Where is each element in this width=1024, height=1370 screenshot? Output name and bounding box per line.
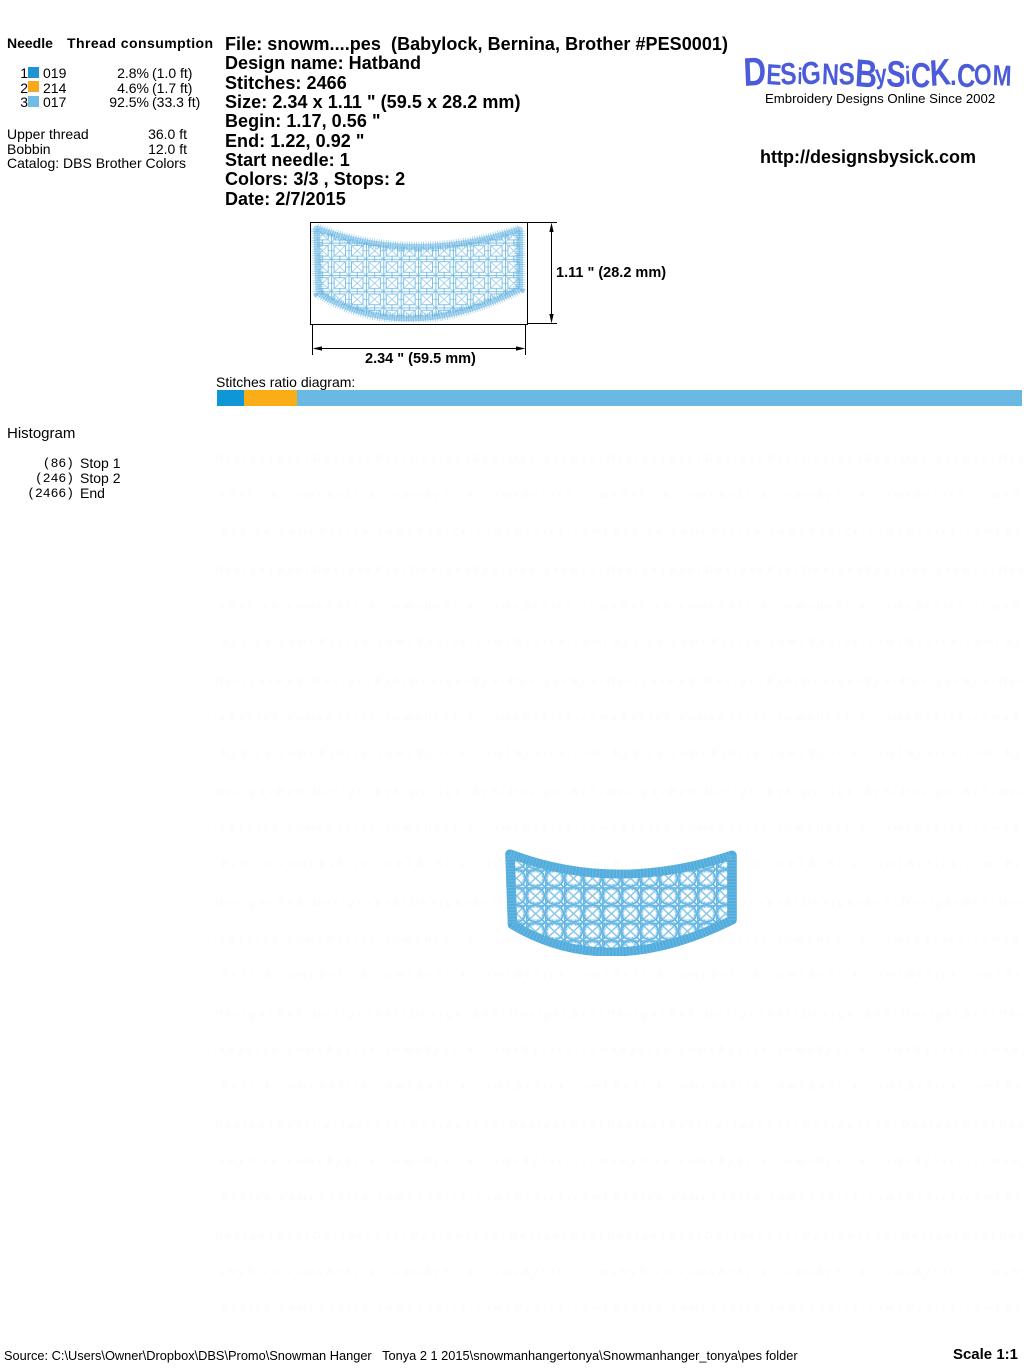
svg-text:N: N [821,57,839,91]
svg-text:O: O [973,57,992,92]
svg-text:S: S [885,54,906,95]
svg-text:K: K [929,52,952,95]
svg-text:G: G [800,55,822,93]
svg-text:M: M [992,58,1012,92]
svg-text:S: S [838,56,856,92]
svg-text:D: D [744,49,767,95]
svg-text:S: S [779,56,797,92]
